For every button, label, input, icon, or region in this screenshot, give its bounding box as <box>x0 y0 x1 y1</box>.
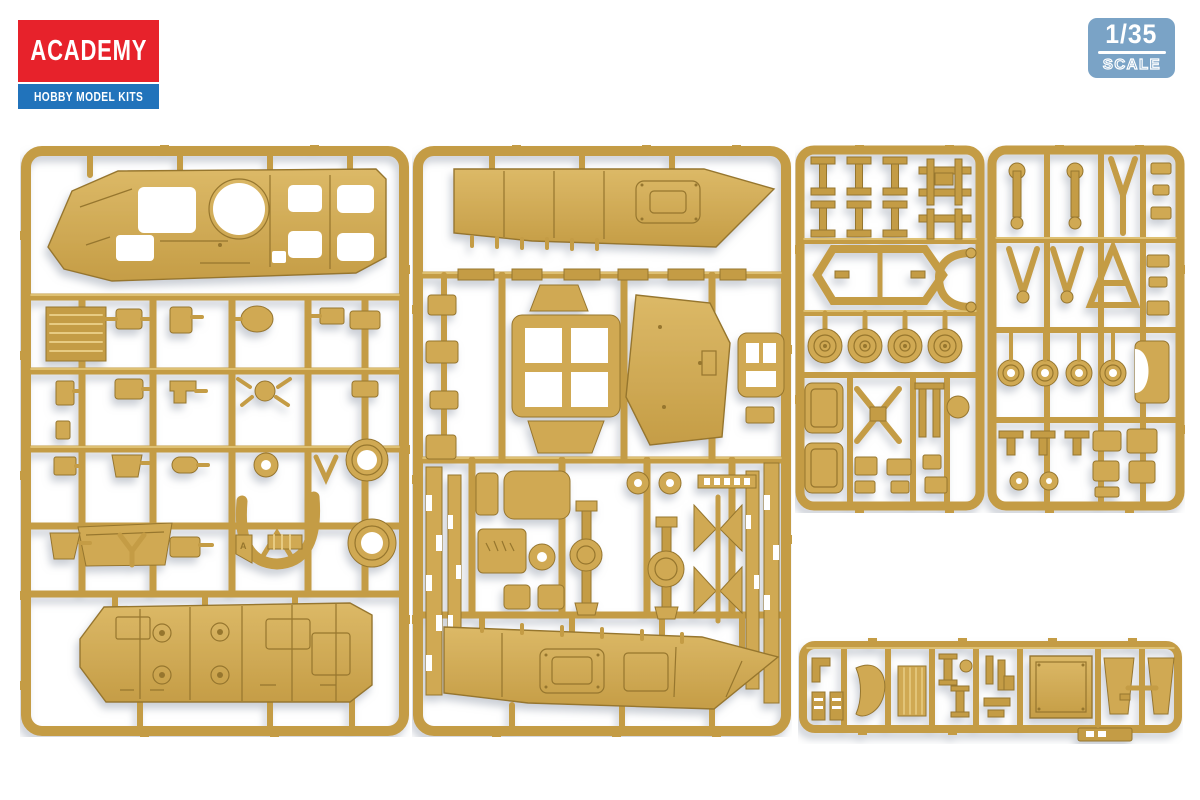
brand-tagline: HOBBY MODEL KITS <box>34 90 143 104</box>
academy-logo: ACADEMY HOBBY MODEL KITS <box>18 20 159 109</box>
svg-text:A: A <box>240 541 247 551</box>
sprue-a-graphic: A <box>20 145 410 737</box>
scale-label-outline: SCALE <box>1095 55 1169 73</box>
academy-logo-blue-bar: HOBBY MODEL KITS <box>18 84 159 109</box>
scale-badge: 1/35 SCALE <box>1088 18 1175 78</box>
sprue-b-graphic <box>412 145 792 737</box>
sprue-c-graphic <box>795 145 1185 513</box>
academy-logo-red-box: ACADEMY <box>18 20 159 82</box>
scale-value: 1/35 <box>1105 18 1157 51</box>
sprue-e-graphic <box>798 636 1183 744</box>
model-kit-sprues-photo: ACADEMY HOBBY MODEL KITS 1/35 SCALE <box>0 0 1200 800</box>
scale-label: SCALE <box>1102 56 1160 73</box>
brand-name: ACADEMY <box>30 35 147 68</box>
scale-badge-divider-line <box>1098 51 1166 54</box>
